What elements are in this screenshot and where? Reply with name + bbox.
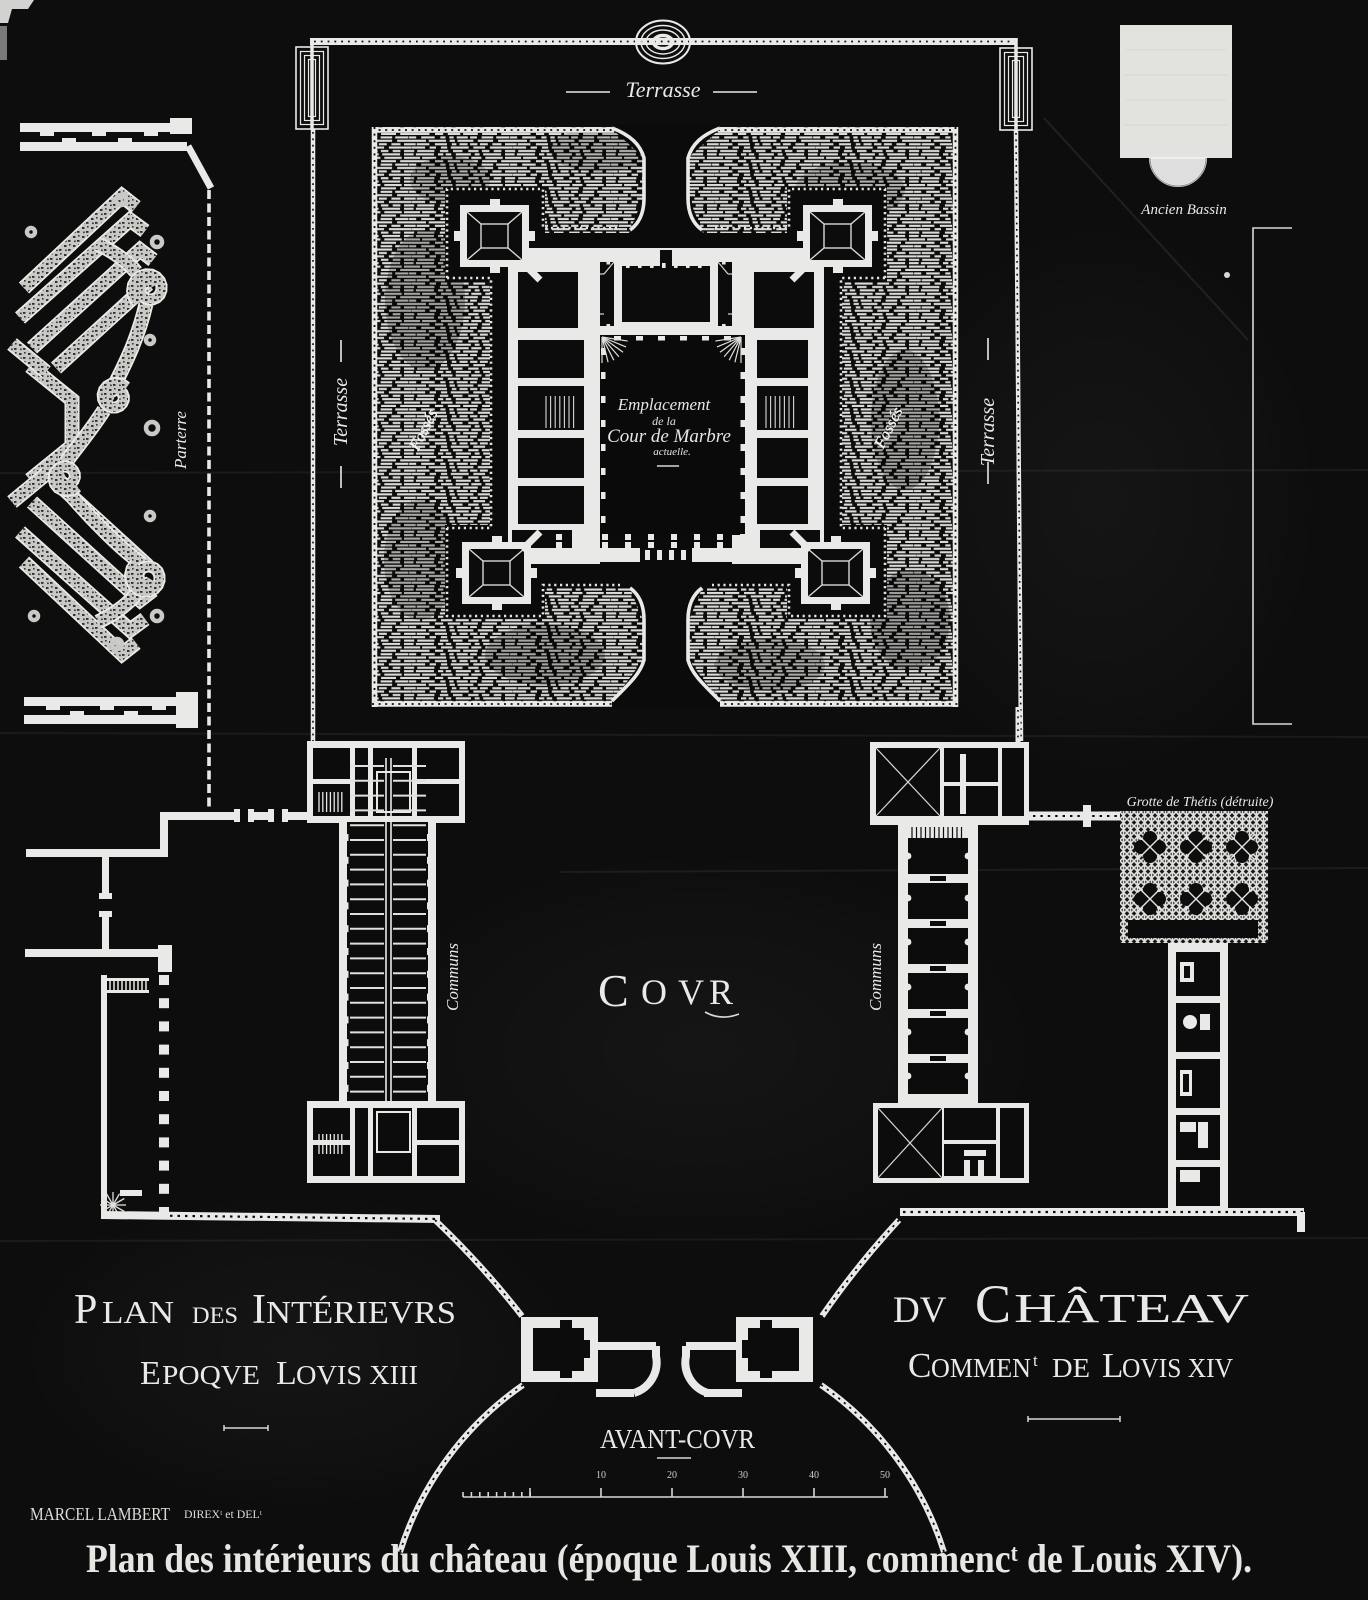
svg-text:C: C xyxy=(908,1346,931,1385)
svg-text:E: E xyxy=(140,1355,161,1392)
svg-text:30: 30 xyxy=(738,1470,748,1481)
svg-text:Cour de Marbre: Cour de Marbre xyxy=(607,426,731,447)
svg-text:R: R xyxy=(709,972,733,1012)
svg-text:MARCEL LAMBERT: MARCEL LAMBERT xyxy=(30,1504,170,1524)
svg-text:LAN: LAN xyxy=(102,1294,174,1330)
svg-text:Communs: Communs xyxy=(866,943,885,1011)
svg-text:OMMEN: OMMEN xyxy=(931,1353,1031,1383)
svg-text:I: I xyxy=(252,1287,266,1333)
svg-text:P: P xyxy=(74,1287,97,1333)
svg-text:actuelle.: actuelle. xyxy=(653,446,691,458)
svg-text:Communs: Communs xyxy=(443,943,462,1011)
svg-text:C: C xyxy=(975,1274,1011,1334)
svg-text:50: 50 xyxy=(880,1470,890,1481)
svg-text:O: O xyxy=(641,972,667,1012)
svg-text:Terrasse: Terrasse xyxy=(330,378,352,446)
svg-text:Ancien Bassin: Ancien Bassin xyxy=(1140,202,1226,218)
svg-text:NTÉRIEVRS: NTÉRIEVRS xyxy=(266,1294,456,1330)
svg-text:L: L xyxy=(1102,1346,1123,1385)
svg-text:AVANT-COVR: AVANT-COVR xyxy=(600,1424,755,1454)
svg-text:40: 40 xyxy=(809,1470,819,1481)
svg-text:10: 10 xyxy=(596,1470,606,1481)
svg-text:OVIS XIII: OVIS XIII xyxy=(296,1360,418,1390)
svg-text:DV: DV xyxy=(893,1290,947,1331)
svg-text:HÂTEAV: HÂTEAV xyxy=(1014,1285,1250,1331)
svg-text:OVIS XIV: OVIS XIV xyxy=(1122,1353,1233,1383)
svg-text:DE: DE xyxy=(1052,1353,1090,1383)
svg-text:Emplacement: Emplacement xyxy=(617,395,712,414)
svg-text:Terrasse: Terrasse xyxy=(977,398,999,466)
svg-text:V: V xyxy=(678,972,704,1012)
svg-text:POQVE: POQVE xyxy=(162,1360,260,1390)
svg-text:L: L xyxy=(276,1355,297,1392)
svg-text:DES: DES xyxy=(192,1303,238,1328)
svg-text:DIREXᵗ et DELᵗ: DIREXᵗ et DELᵗ xyxy=(184,1509,262,1521)
svg-text:Parterre: Parterre xyxy=(171,411,190,470)
svg-text:20: 20 xyxy=(667,1470,677,1481)
svg-text:Grotte de Thétis (détruite): Grotte de Thétis (détruite) xyxy=(1127,795,1274,810)
svg-text:C: C xyxy=(598,965,629,1016)
svg-text:t: t xyxy=(1033,1351,1038,1370)
svg-text:Plan des intérieurs du château: Plan des intérieurs du château (époque L… xyxy=(86,1536,1252,1581)
svg-text:Terrasse: Terrasse xyxy=(626,77,701,102)
